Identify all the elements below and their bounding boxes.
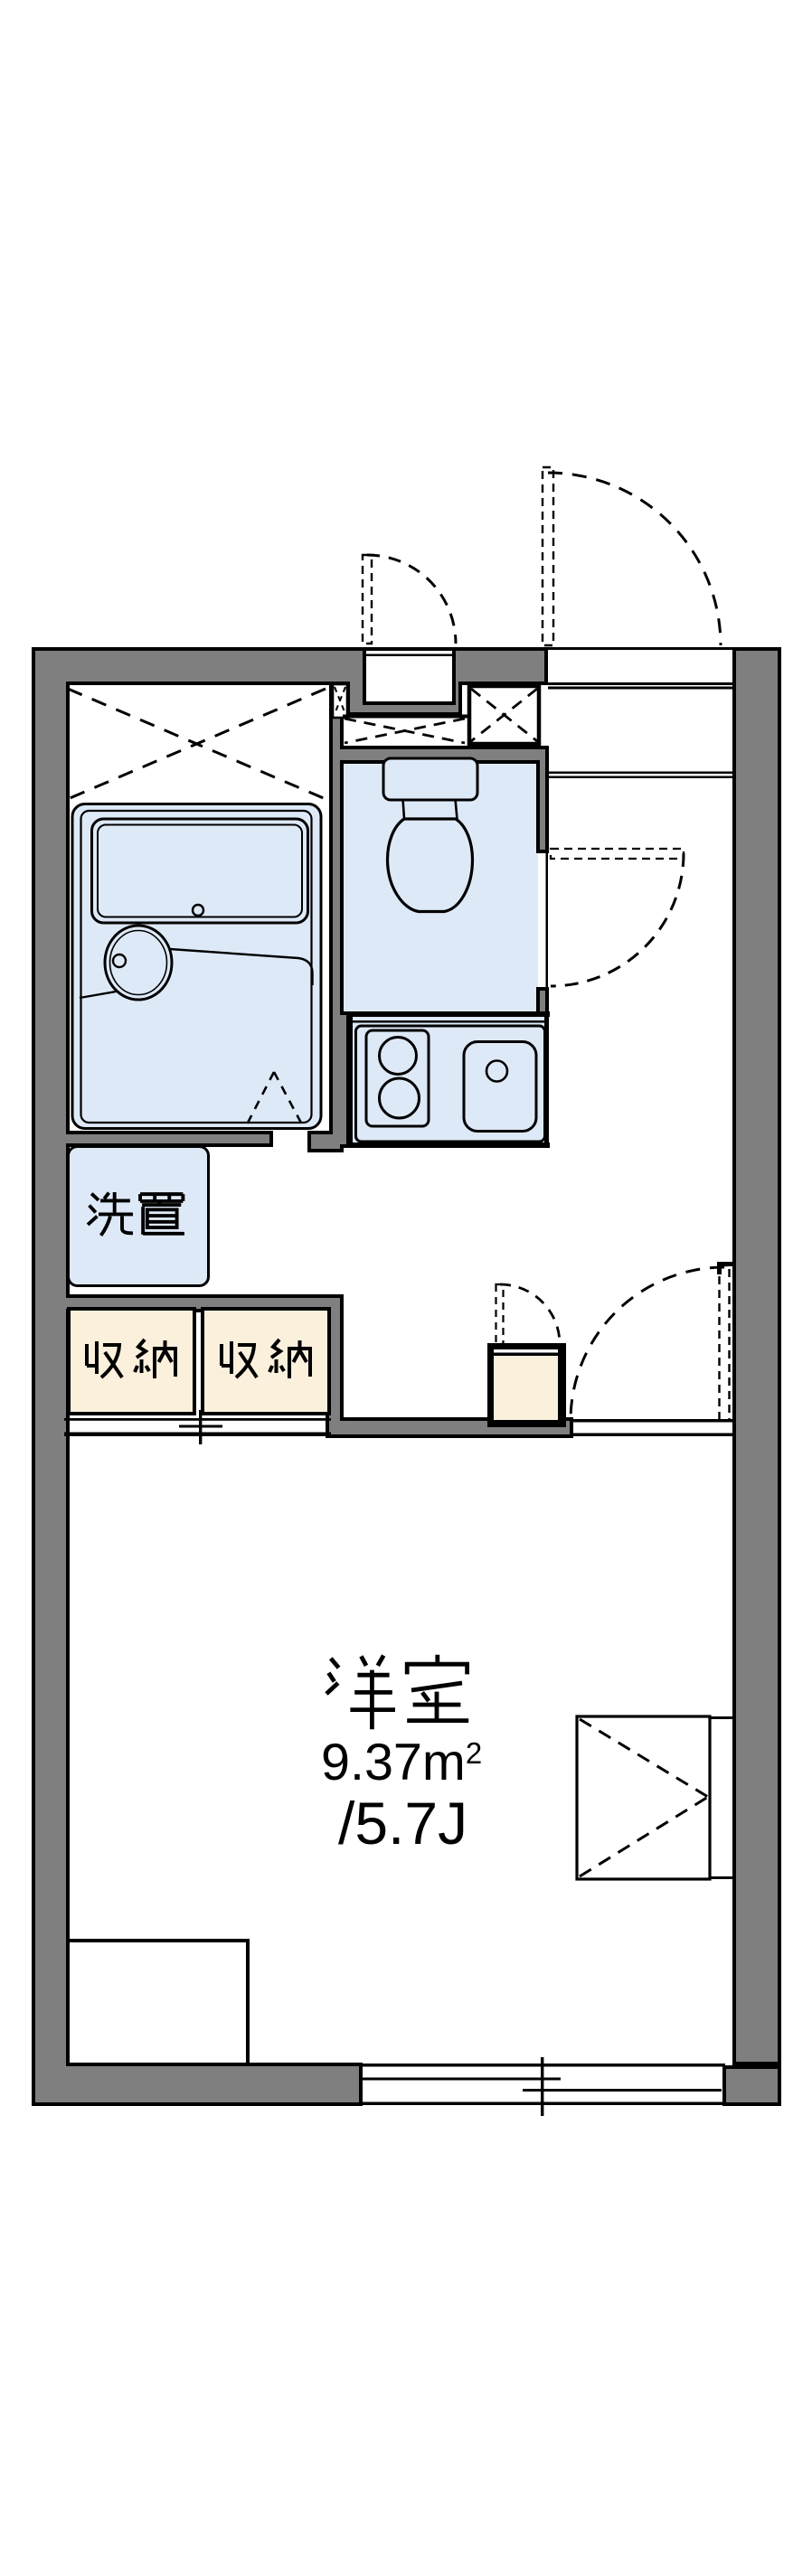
svg-text:/5.7J: /5.7J bbox=[338, 1790, 467, 1857]
svg-text:9.37m2: 9.37m2 bbox=[321, 1734, 482, 1791]
